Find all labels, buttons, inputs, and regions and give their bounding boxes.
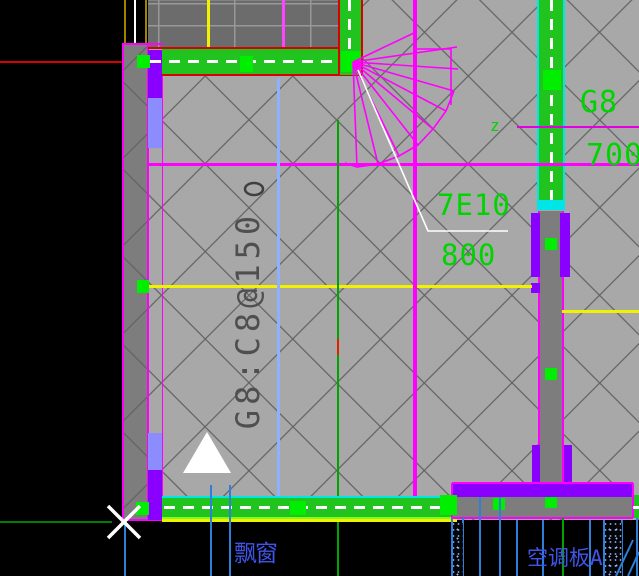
column-marker [545, 368, 557, 380]
column-marker [545, 497, 557, 508]
column-marker [543, 70, 561, 90]
column-marker [290, 501, 306, 515]
drop-line-blue [229, 485, 231, 576]
wall-line-olive-1 [124, 0, 126, 44]
drop-line-blue [479, 497, 481, 576]
drop-line-blue [516, 520, 518, 576]
br-wall-rebar-band [452, 483, 633, 497]
label-bay-window[interactable]: 飘窗 [234, 543, 276, 566]
insulation-column [453, 523, 463, 576]
wall-line-olive-2 [145, 0, 147, 44]
bottom-wall-yellow-line [162, 519, 457, 522]
wall-line-white [134, 0, 136, 44]
insulation-column [605, 523, 622, 576]
right-wall-rebar-right [560, 213, 570, 277]
column-marker-fan-center [341, 51, 361, 72]
right-wall-rebar-left [531, 213, 540, 277]
dim-line-magenta-thick [148, 163, 639, 167]
baseline-green [0, 521, 112, 523]
axis-line-red [0, 61, 124, 63]
column-marker [137, 55, 150, 68]
column-marker [136, 502, 149, 515]
top-wall-red-outline-top [148, 47, 362, 49]
left-wall-rebar-purple-bottom [148, 470, 162, 520]
aux-line-lightblue [277, 78, 280, 497]
right-wall-cap [537, 200, 565, 210]
drop-line-blue [210, 485, 212, 576]
left-wall-rebar-periwinkle-top [148, 98, 162, 148]
left-wall-outline-outer [122, 44, 124, 522]
column-marker [545, 238, 557, 250]
stair-wall-red-left [338, 0, 340, 75]
drop-line-blue [124, 522, 126, 576]
bottom-wall-top-edge [162, 496, 457, 498]
top-wall-red-outline-bottom [162, 74, 362, 76]
drop-line-blue [499, 497, 501, 576]
label-rebar-count[interactable]: 7E10 [437, 191, 511, 220]
slab-direction-triangle [183, 432, 231, 473]
label-wall-dim[interactable]: 700 [586, 141, 639, 171]
br-wall-outline-top [452, 482, 633, 484]
label-wall-mark[interactable]: G8 [580, 88, 618, 118]
rebar-line-yellow-top [207, 0, 210, 48]
label-slab-rebar[interactable]: G8:C8@150 [229, 211, 267, 429]
right-wall-cyan-right [563, 0, 565, 211]
right-wall-rebar-riser-left [532, 445, 540, 485]
drop-line-blue [636, 518, 638, 576]
right-wall-rebar-riser-right [564, 445, 572, 485]
label-break-symbol: z [490, 118, 501, 134]
column-marker [240, 56, 253, 72]
rebar-yellow-right [562, 310, 639, 313]
rebar-yellow-mid [148, 285, 532, 288]
aux-line-green-red-tick [337, 339, 339, 355]
left-wall-top-edge [122, 43, 163, 45]
stair-line-magenta-vertical [413, 0, 417, 503]
label-ac-slab[interactable]: 空调板A [527, 548, 603, 569]
column-marker [137, 280, 149, 293]
top-wall-centerline [150, 60, 362, 63]
bottom-wall-centerline [164, 506, 454, 509]
column-marker [440, 495, 457, 515]
label-rebar-spacing[interactable]: 800 [441, 241, 496, 270]
upper-room-floor [148, 0, 339, 48]
dim-line-magenta-thin [517, 126, 639, 128]
right-wall-cyan-left [537, 0, 539, 211]
cad-canvas[interactable]: G8 700 7E10 800 z G8:C8@150 飘窗 空调板A [0, 0, 639, 576]
left-wall-rebar-purple-top [148, 50, 162, 98]
left-wall-rebar-periwinkle-bottom [148, 433, 162, 470]
br-wall-end-centerline [633, 506, 639, 509]
right-wall-centerline [550, 0, 553, 200]
rebar-line-magenta-top [282, 0, 285, 48]
right-wall-rebar-notch [531, 283, 540, 293]
